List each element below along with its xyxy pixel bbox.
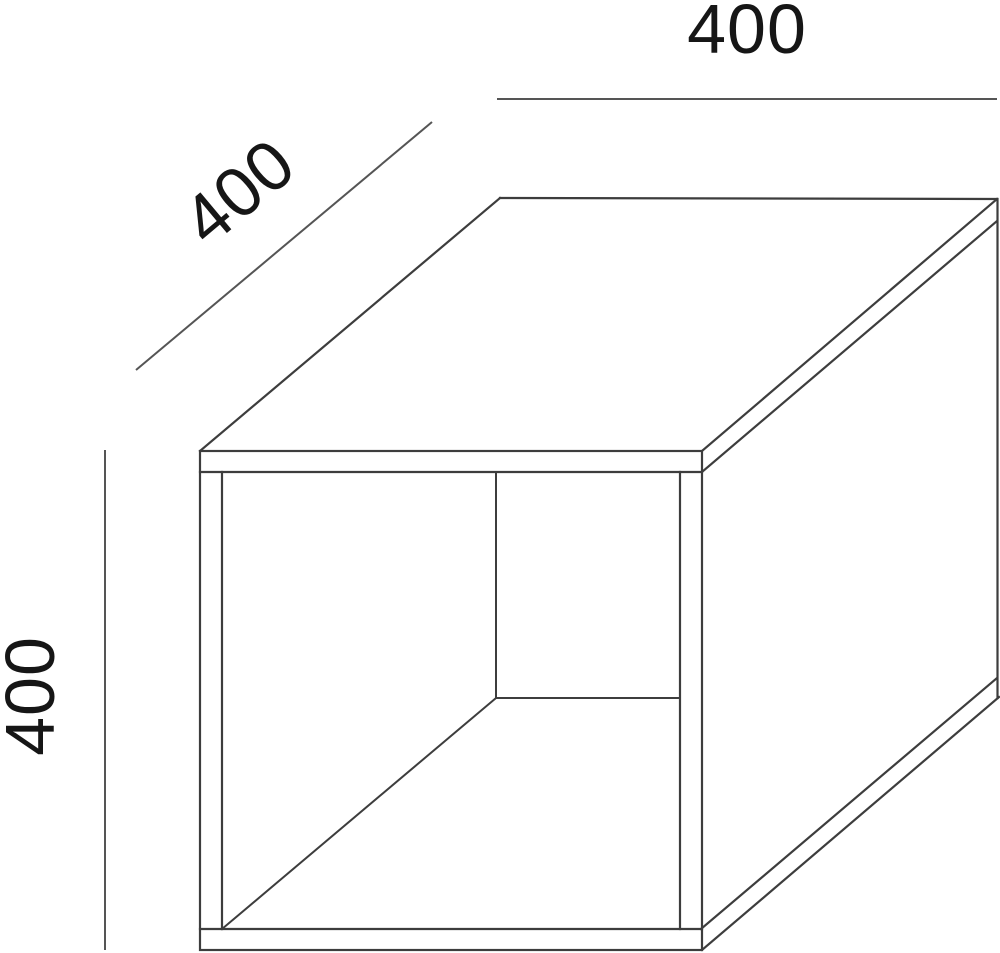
- dimension-labels: 400 400 400: [0, 0, 807, 756]
- cube-dimension-drawing: 400 400 400: [0, 0, 1000, 953]
- cube-right-face: [701, 199, 999, 950]
- top-face-back-edge: [500, 198, 997, 199]
- drawing-canvas: 400 400 400: [0, 0, 1000, 953]
- top-face-right-edge: [702, 199, 997, 451]
- cube-front-face: [200, 451, 702, 950]
- cube-top-face: [200, 198, 997, 451]
- bottom-face-right-edge: [702, 697, 999, 950]
- cube-interior: [222, 472, 680, 929]
- width-dimension-label: 400: [687, 0, 807, 68]
- depth-dimension-label: 400: [168, 123, 310, 260]
- interior-floor-left-edge: [222, 698, 496, 929]
- top-board-thickness-edge: [702, 221, 997, 472]
- bottom-board-thickness-top-edge: [701, 678, 997, 929]
- front-outer-rect: [200, 451, 702, 950]
- height-dimension-label: 400: [0, 636, 69, 756]
